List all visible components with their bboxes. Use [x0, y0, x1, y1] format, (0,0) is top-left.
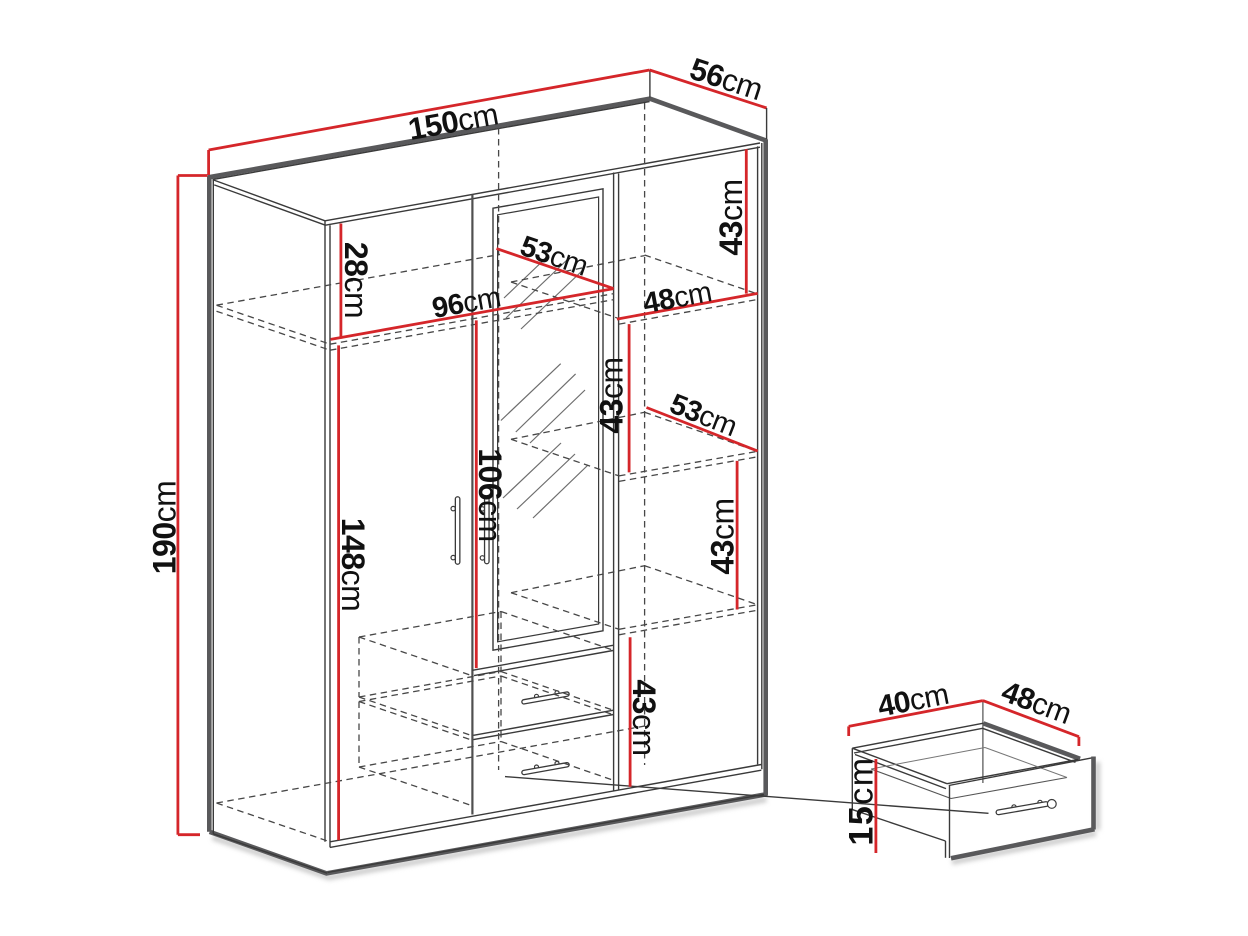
svg-text:148cm: 148cm	[335, 518, 371, 612]
svg-text:43cm: 43cm	[626, 679, 662, 755]
svg-text:15cm: 15cm	[843, 756, 881, 845]
svg-text:43cm: 43cm	[594, 357, 630, 433]
svg-text:43cm: 43cm	[713, 179, 749, 255]
svg-text:106cm: 106cm	[472, 448, 508, 542]
svg-text:43cm: 43cm	[705, 498, 741, 574]
svg-text:28cm: 28cm	[338, 242, 374, 318]
svg-text:190cm: 190cm	[147, 481, 183, 575]
